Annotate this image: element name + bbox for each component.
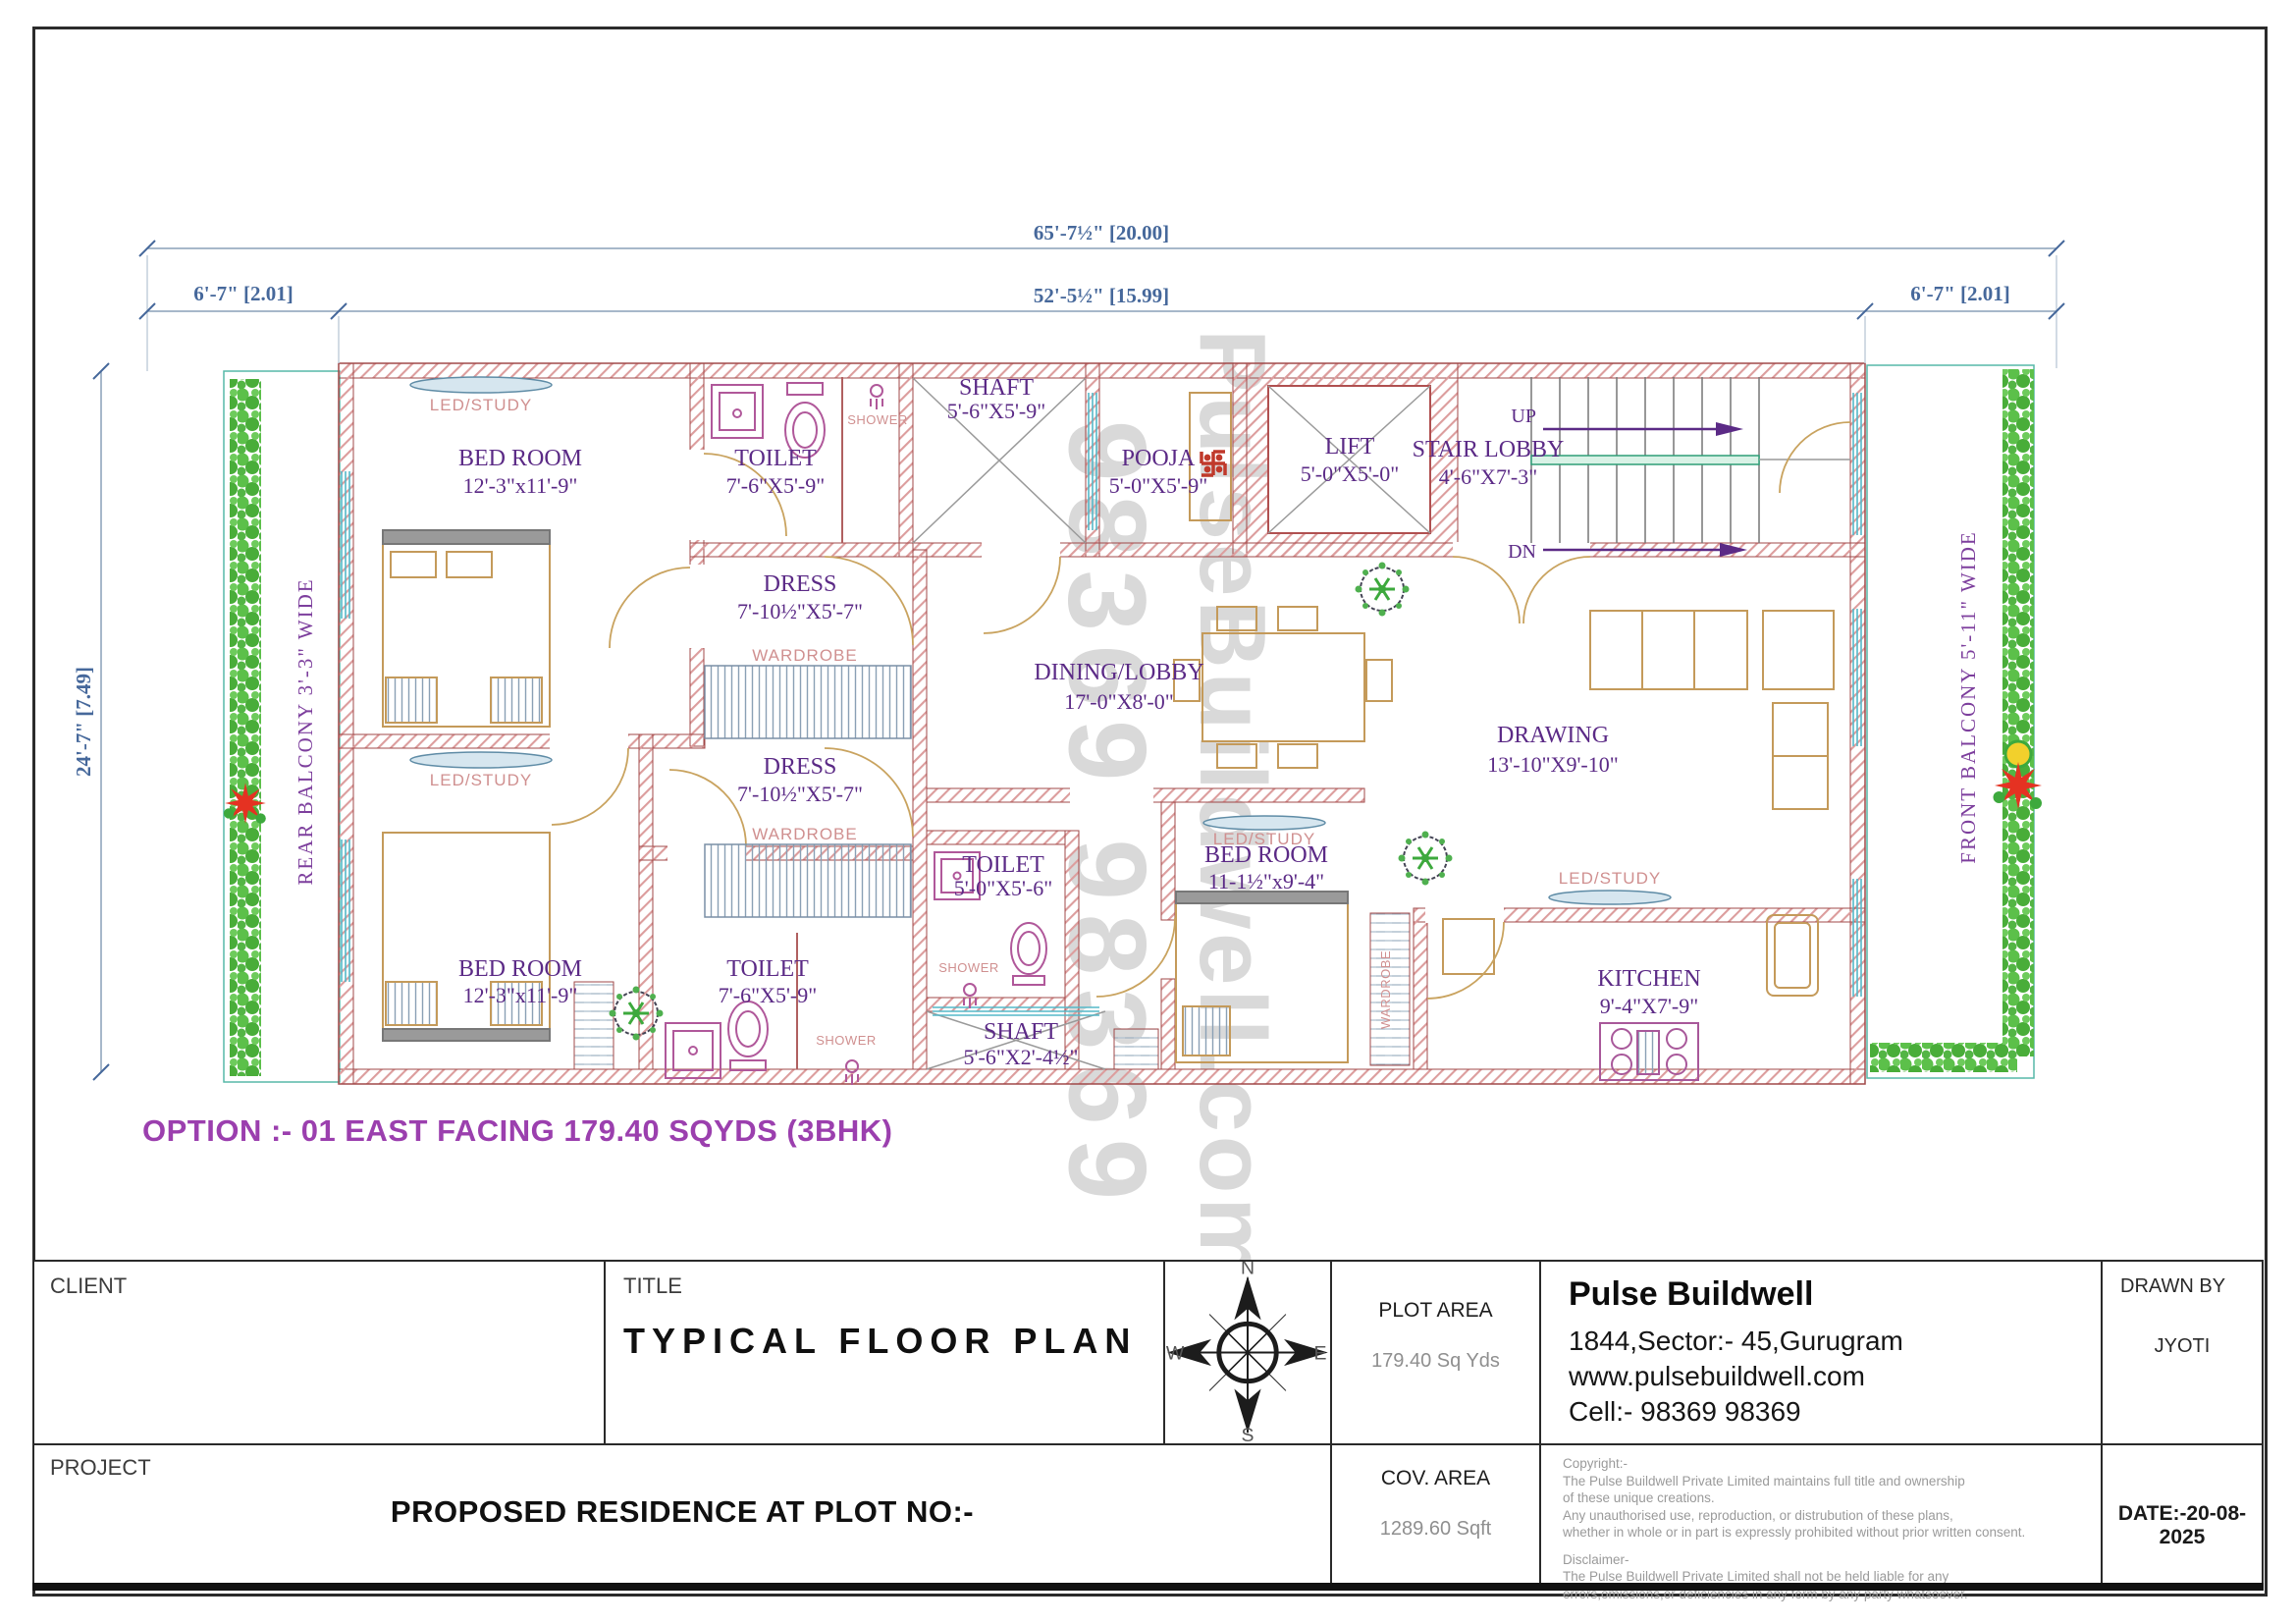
room-label: KITCHEN <box>1597 966 1700 992</box>
room-size: 5'-6"X5'-9" <box>947 399 1045 423</box>
dim-inner-width: 52'-5½" [15.99] <box>1034 284 1169 307</box>
copyright-cell: Copyright:- The Pulse Buildwell Private … <box>1539 1443 2103 1591</box>
shower-label: SHOWER <box>847 412 908 427</box>
room-size: 4'-6"X7'-3" <box>1439 464 1537 489</box>
title-cell: TITLE TYPICAL FLOOR PLAN <box>604 1260 1165 1445</box>
company-cell: Pulse Buildwell 1844,Sector:- 45,Gurugra… <box>1539 1260 2103 1445</box>
compass-w: W <box>1166 1342 1185 1364</box>
room-label: DRESS <box>764 571 837 597</box>
date-value: DATE:-20-08-2025 <box>2103 1502 2262 1549</box>
led-study-label: LED/STUDY <box>1213 830 1315 848</box>
room-size: 7'-6"X5'-9" <box>726 473 825 498</box>
room-size: 9'-4"X7'-9" <box>1600 994 1698 1018</box>
up-arrow <box>1716 422 1743 436</box>
shower-label: SHOWER <box>816 1033 877 1048</box>
room-size: 12'-3"x11'-9" <box>463 473 578 498</box>
project-label: PROJECT <box>50 1455 1330 1481</box>
room-label: LIFT <box>1325 434 1375 460</box>
copyright-line: Copyright:- <box>1563 1455 2101 1473</box>
rear-balcony <box>224 371 340 1082</box>
room-size: 11-1½"x9'-4" <box>1208 869 1324 893</box>
dim-right-balcony: 6'-7" [2.01] <box>1910 282 2009 305</box>
copyright-line: of these unique creations. <box>1563 1489 2101 1507</box>
cov-area-value: 1289.60 Sqft <box>1332 1518 1539 1541</box>
dim-left-balcony: 6'-7" [2.01] <box>193 282 293 305</box>
company-address: 1844,Sector:- 45,Gurugram <box>1569 1324 2101 1359</box>
shower-label: SHOWER <box>938 960 999 975</box>
front-hedge-bottom <box>1870 1043 2017 1072</box>
cov-area-label: COV. AREA <box>1332 1467 1539 1490</box>
title-block-bottom-band <box>32 1583 2264 1591</box>
drawn-by-label: DRAWN BY <box>2120 1275 2262 1298</box>
stair-railing <box>1531 456 1759 464</box>
client-cell: CLIENT <box>32 1260 606 1445</box>
shower-head-icon <box>871 385 882 409</box>
room-label: BED ROOM <box>458 956 582 982</box>
room-label: TOILET <box>726 956 809 982</box>
stove <box>1600 1023 1698 1080</box>
front-hedge <box>2002 369 2034 1056</box>
room-label: DINING/LOBBY <box>1034 660 1203 685</box>
compass-cell: N E S W <box>1163 1260 1332 1445</box>
dim-total-width: 65'-7½" [20.00] <box>1034 221 1169 244</box>
room-size: 5'-0"X5'-9" <box>1109 473 1207 498</box>
front-balcony <box>1867 365 2042 1078</box>
swastika-icon <box>1201 452 1225 475</box>
drawing-sheet: 98369 98369 PulseBuildwell.com <box>0 0 2296 1624</box>
plant-icon <box>610 987 664 1041</box>
wardrobe-label: WARDROBE <box>1378 950 1393 1029</box>
staircase <box>1531 377 1850 557</box>
room-label: DRESS <box>764 754 837 780</box>
title-block: CLIENT TITLE TYPICAL FLOOR PLAN <box>32 1260 2264 1591</box>
company-website: www.pulsebuildwell.com <box>1569 1359 2101 1394</box>
up-label: UP <box>1511 406 1536 427</box>
wardrobe-label: WARDROBE <box>752 825 858 843</box>
room-size: 13'-10"X9'-10" <box>1487 752 1618 777</box>
room-size: 5'-0"X5'-6" <box>954 876 1052 900</box>
room-size: 7'-10½"X5'-7" <box>737 599 863 623</box>
room-size: 5'-0"X5'-0" <box>1301 461 1399 486</box>
wardrobe-label: WARDROBE <box>752 646 858 665</box>
drawn-by-cell: DRAWN BY JYOTI <box>2101 1260 2264 1445</box>
plot-area-cell: PLOT AREA 179.40 Sq Yds <box>1330 1260 1541 1445</box>
led-study-label: LED/STUDY <box>430 771 532 789</box>
plant-icon <box>1399 832 1453 886</box>
room-label: BED ROOM <box>458 446 582 471</box>
plot-area-label: PLOT AREA <box>1332 1299 1539 1323</box>
room-label: TOILET <box>734 446 817 471</box>
cov-area-cell: COV. AREA 1289.60 Sqft <box>1330 1443 1541 1591</box>
copyright-line: The Pulse Buildwell Private Limited main… <box>1563 1473 2101 1490</box>
plot-area-value: 179.40 Sq Yds <box>1332 1350 1539 1373</box>
compass-e: E <box>1314 1342 1327 1364</box>
lift <box>1268 386 1430 533</box>
project-cell: PROJECT PROPOSED RESIDENCE AT PLOT NO:- <box>32 1443 1332 1591</box>
room-size: 7'-6"X5'-9" <box>719 983 817 1007</box>
rear-hedge <box>230 379 261 1076</box>
led-study-label: LED/STUDY <box>430 396 532 414</box>
room-label: POOJA <box>1122 446 1196 471</box>
room-size: 17'-0"X8'-0" <box>1064 689 1173 714</box>
dim-height: 24'-7" [7.49] <box>72 667 95 777</box>
company-name: Pulse Buildwell <box>1569 1275 2101 1314</box>
front-balcony-label: FRONT BALCONY 5'-11" WIDE <box>1956 530 1980 863</box>
compass-rose: N E S W <box>1165 1262 1330 1443</box>
room-label: SHAFT <box>959 375 1034 401</box>
room-size: 5'-6"X2'-4½" <box>964 1045 1079 1069</box>
led-study-label: LED/STUDY <box>1559 869 1661 888</box>
room-label: TOILET <box>962 852 1044 878</box>
disclaimer-line: Disclaimer- <box>1563 1551 2101 1569</box>
date-cell: DATE:-20-08-2025 <box>2101 1443 2264 1591</box>
copyright-line: whether in whole or in part is expressly… <box>1563 1524 2101 1542</box>
room-size: 7'-10½"X5'-7" <box>737 782 863 806</box>
compass-n: N <box>1241 1262 1255 1279</box>
compass-s: S <box>1242 1425 1255 1443</box>
option-note: OPTION :- 01 EAST FACING 179.40 SQYDS (3… <box>142 1113 892 1149</box>
room-label: DRAWING <box>1497 723 1609 748</box>
room-size: 12'-3"x11'-9" <box>463 983 578 1007</box>
room-label: SHAFT <box>984 1019 1058 1045</box>
copyright-line: Any unauthorised use, reproduction, or d… <box>1563 1507 2101 1525</box>
company-cell-number: Cell:- 98369 98369 <box>1569 1394 2101 1430</box>
drawn-by-value: JYOTI <box>2103 1335 2262 1358</box>
project-title: PROPOSED RESIDENCE AT PLOT NO:- <box>34 1494 1330 1530</box>
title-label: TITLE <box>623 1273 1163 1299</box>
client-label: CLIENT <box>50 1273 604 1299</box>
drawing-title: TYPICAL FLOOR PLAN <box>623 1321 1163 1362</box>
plant-icon <box>1356 563 1410 617</box>
rear-balcony-label: REAR BALCONY 3'-3" WIDE <box>294 577 317 885</box>
room-label: STAIR LOBBY <box>1413 437 1565 462</box>
dn-label: DN <box>1508 541 1536 563</box>
